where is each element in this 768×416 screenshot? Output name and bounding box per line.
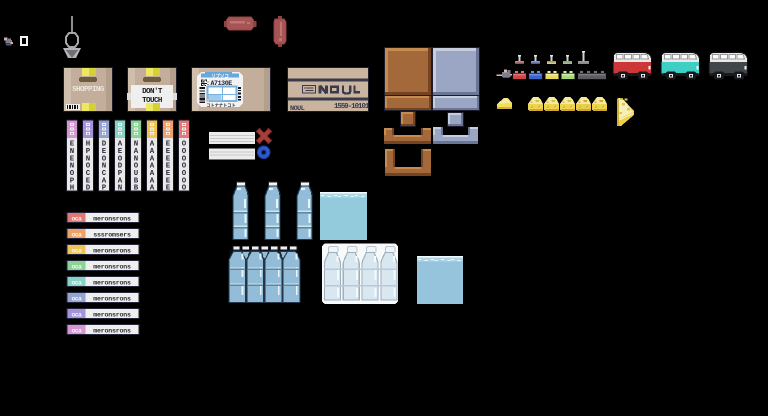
svg-text:meronsrons: meronsrons [93, 280, 131, 287]
svg-text:meronsrons: meronsrons [93, 264, 131, 271]
svg-text:DON'T: DON'T [142, 88, 163, 96]
svg-text:AAAAAAA: AAAAAAA [150, 141, 155, 193]
svg-text:meronsrons: meronsrons [93, 328, 131, 335]
svg-text:HPNOCED: HPNOCED [86, 141, 91, 193]
svg-text:NANOUBB: NANOUBB [134, 141, 139, 193]
svg-text:DEONCAP: DEONCAP [102, 141, 107, 193]
svg-text:リプソコ: リプソコ [211, 73, 229, 80]
svg-text:oca: oca [72, 295, 83, 302]
svg-text:oca: oca [72, 215, 83, 222]
svg-text:oca: oca [72, 247, 83, 254]
svg-text:meronsrons: meronsrons [93, 312, 131, 319]
svg-text:1559-10101: 1559-10101 [334, 103, 370, 111]
svg-text:oca: oca [72, 311, 83, 318]
svg-text:sssromsers: sssromsers [93, 232, 131, 239]
svg-text:EEEEEEE: EEEEEEE [166, 141, 171, 193]
svg-text:AEODPAN: AEODPAN [118, 141, 123, 193]
svg-text:SHOPPING: SHOPPING [72, 86, 105, 94]
svg-text:oca: oca [72, 327, 83, 334]
svg-text:OOOOOOO: OOOOOOO [182, 141, 187, 193]
svg-text:ENENOPH: ENENOPH [70, 141, 75, 193]
svg-text:meronsrons: meronsrons [93, 296, 131, 303]
svg-text:oca: oca [72, 231, 83, 238]
svg-text:oca: oca [72, 263, 83, 270]
svg-text:meronsrons: meronsrons [93, 216, 131, 223]
svg-text:NOUL: NOUL [290, 105, 305, 113]
svg-text:meronsrons: meronsrons [93, 248, 131, 255]
svg-text:oca: oca [72, 279, 83, 286]
